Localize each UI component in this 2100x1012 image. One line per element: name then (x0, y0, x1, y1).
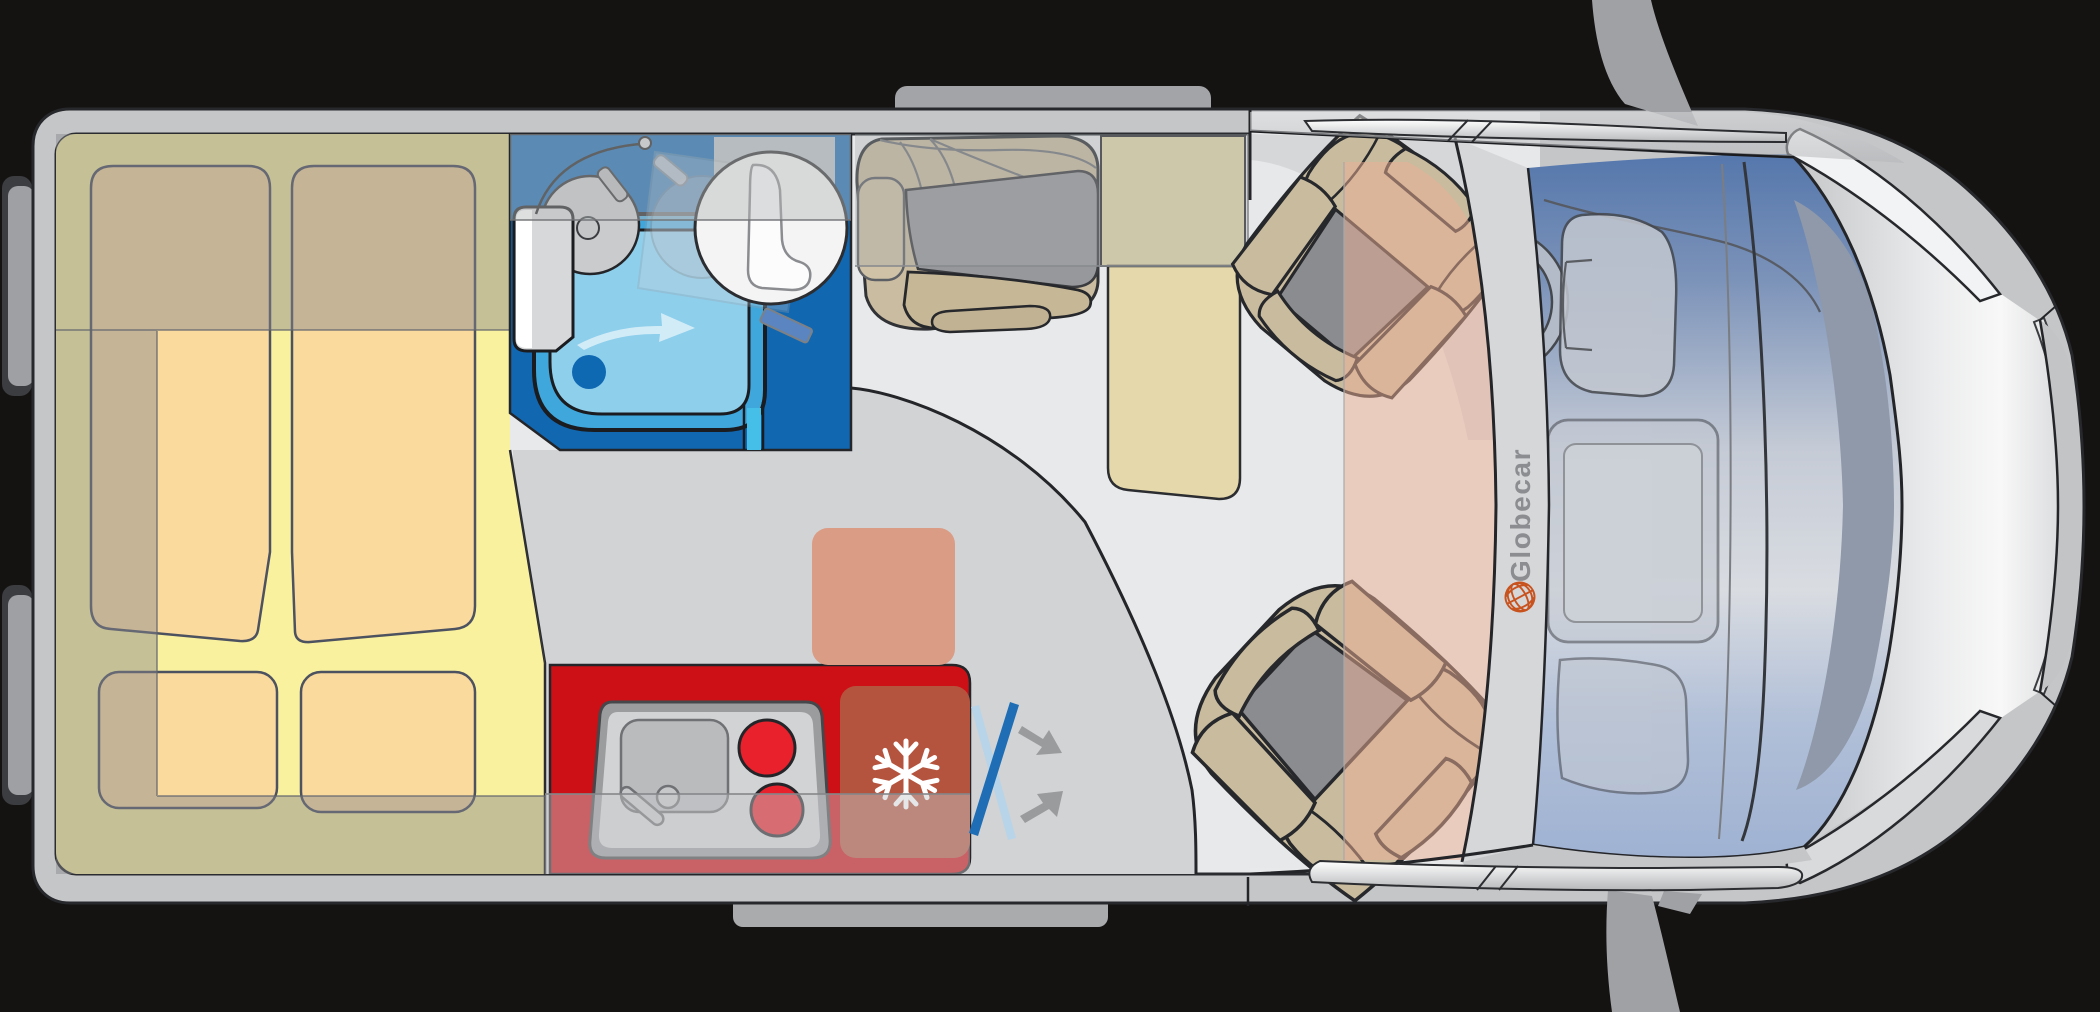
svg-text:Globecar: Globecar (1505, 448, 1536, 582)
